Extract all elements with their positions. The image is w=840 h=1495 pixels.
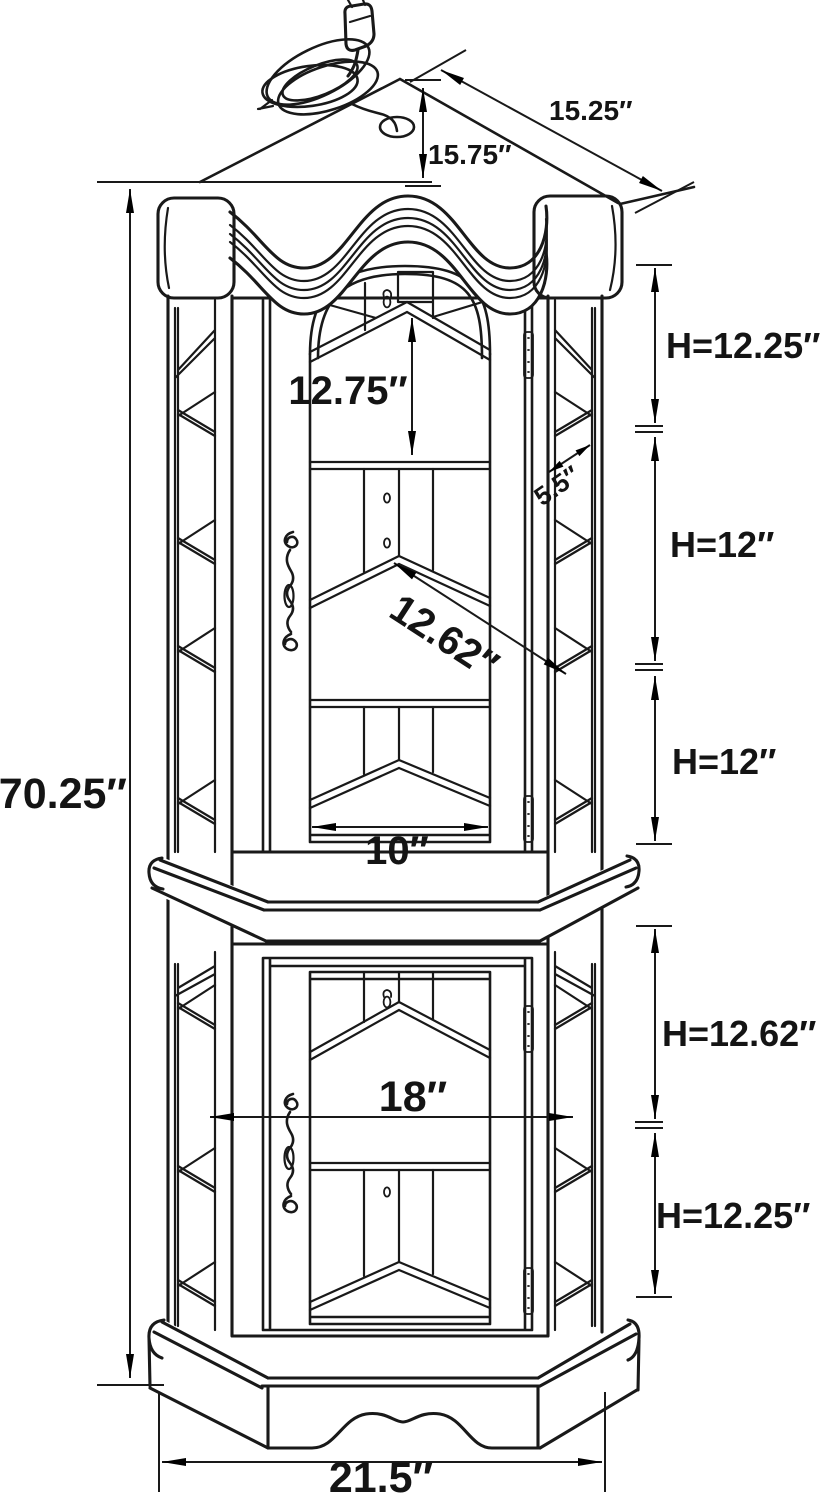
peg-hole bbox=[384, 538, 390, 547]
dim-shelf-height-chain: H=12.25″ H=12″ H=12″ H=12.62″ H=12.25″ bbox=[635, 265, 820, 1297]
crown-block-detail bbox=[165, 208, 169, 288]
hinge-knuckles bbox=[528, 1012, 529, 1046]
peg-hole bbox=[384, 1187, 390, 1196]
crown-corner-block-left bbox=[158, 198, 234, 298]
lower-interior bbox=[310, 972, 490, 1310]
dim-label-base-width: 21.5″ bbox=[329, 1454, 433, 1495]
dim-label-h5: H=12.25″ bbox=[656, 1195, 810, 1236]
lower-door-frame bbox=[263, 958, 532, 1330]
cabinet-dimension-diagram: 15.75″ 15.25″ 70.25″ H=12.25″ H=12″ H=12… bbox=[0, 0, 840, 1495]
plug-body bbox=[345, 4, 374, 51]
door-handle-lower bbox=[284, 1094, 298, 1212]
dim-side-glass-depth: 5.5″ bbox=[528, 445, 590, 512]
dim-label-top-depth: 15.75″ bbox=[428, 139, 511, 170]
hinge-knuckles bbox=[528, 802, 529, 836]
base-fill bbox=[150, 1320, 638, 1448]
ceiling-and-shelf-edges bbox=[310, 1002, 490, 1310]
dim-label-diagonal: 12.62″ bbox=[382, 586, 506, 688]
dim-top-side-edge: 15.25″ bbox=[410, 50, 694, 213]
cabinet-body bbox=[168, 296, 602, 1336]
peg-hole bbox=[384, 493, 390, 502]
dim-label-h2: H=12″ bbox=[670, 524, 774, 565]
dim-upper-opening-height: 12.75″ bbox=[288, 318, 412, 455]
dim-label-lower-width: 18″ bbox=[379, 1073, 447, 1121]
cord-tail bbox=[352, 104, 397, 131]
crown-molding bbox=[158, 196, 622, 314]
dim-label-h1: H=12.25″ bbox=[666, 325, 820, 366]
cord-tie bbox=[258, 100, 273, 109]
dim-label-upper-opening: 12.75″ bbox=[288, 369, 407, 413]
front-face-edges bbox=[232, 296, 548, 1336]
dim-label-h4: H=12.62″ bbox=[662, 1013, 816, 1054]
hinge-knuckles bbox=[528, 338, 529, 372]
hinge-knuckles bbox=[528, 1274, 529, 1308]
dim-ticks bbox=[635, 265, 672, 1297]
dim-line bbox=[441, 70, 662, 191]
upper-interior bbox=[262, 272, 545, 808]
dim-label-h3: H=12″ bbox=[672, 741, 776, 782]
door-handle-upper bbox=[284, 532, 298, 650]
dim-lower-interior-width: 18″ bbox=[210, 1073, 573, 1121]
dim-shelf-diagonal: 12.62″ bbox=[382, 563, 566, 688]
back-corner-posts bbox=[364, 972, 433, 1276]
dim-label-side-depth: 5.5″ bbox=[528, 459, 585, 511]
peg-hole bbox=[384, 997, 391, 1008]
crown-block-detail bbox=[610, 206, 616, 290]
power-cord-icon bbox=[257, 0, 397, 131]
base bbox=[149, 1320, 639, 1448]
dim-label-overall-height: 70.25″ bbox=[0, 770, 127, 818]
dim-extension-lines bbox=[97, 182, 432, 1385]
back-corner-posts bbox=[364, 272, 433, 774]
dim-label-back-width: 10″ bbox=[365, 829, 429, 873]
upper-door bbox=[263, 266, 533, 852]
dim-label-top-side: 15.25″ bbox=[549, 95, 632, 126]
lower-door bbox=[263, 958, 533, 1330]
ceiling-and-shelf-edges bbox=[262, 283, 545, 808]
